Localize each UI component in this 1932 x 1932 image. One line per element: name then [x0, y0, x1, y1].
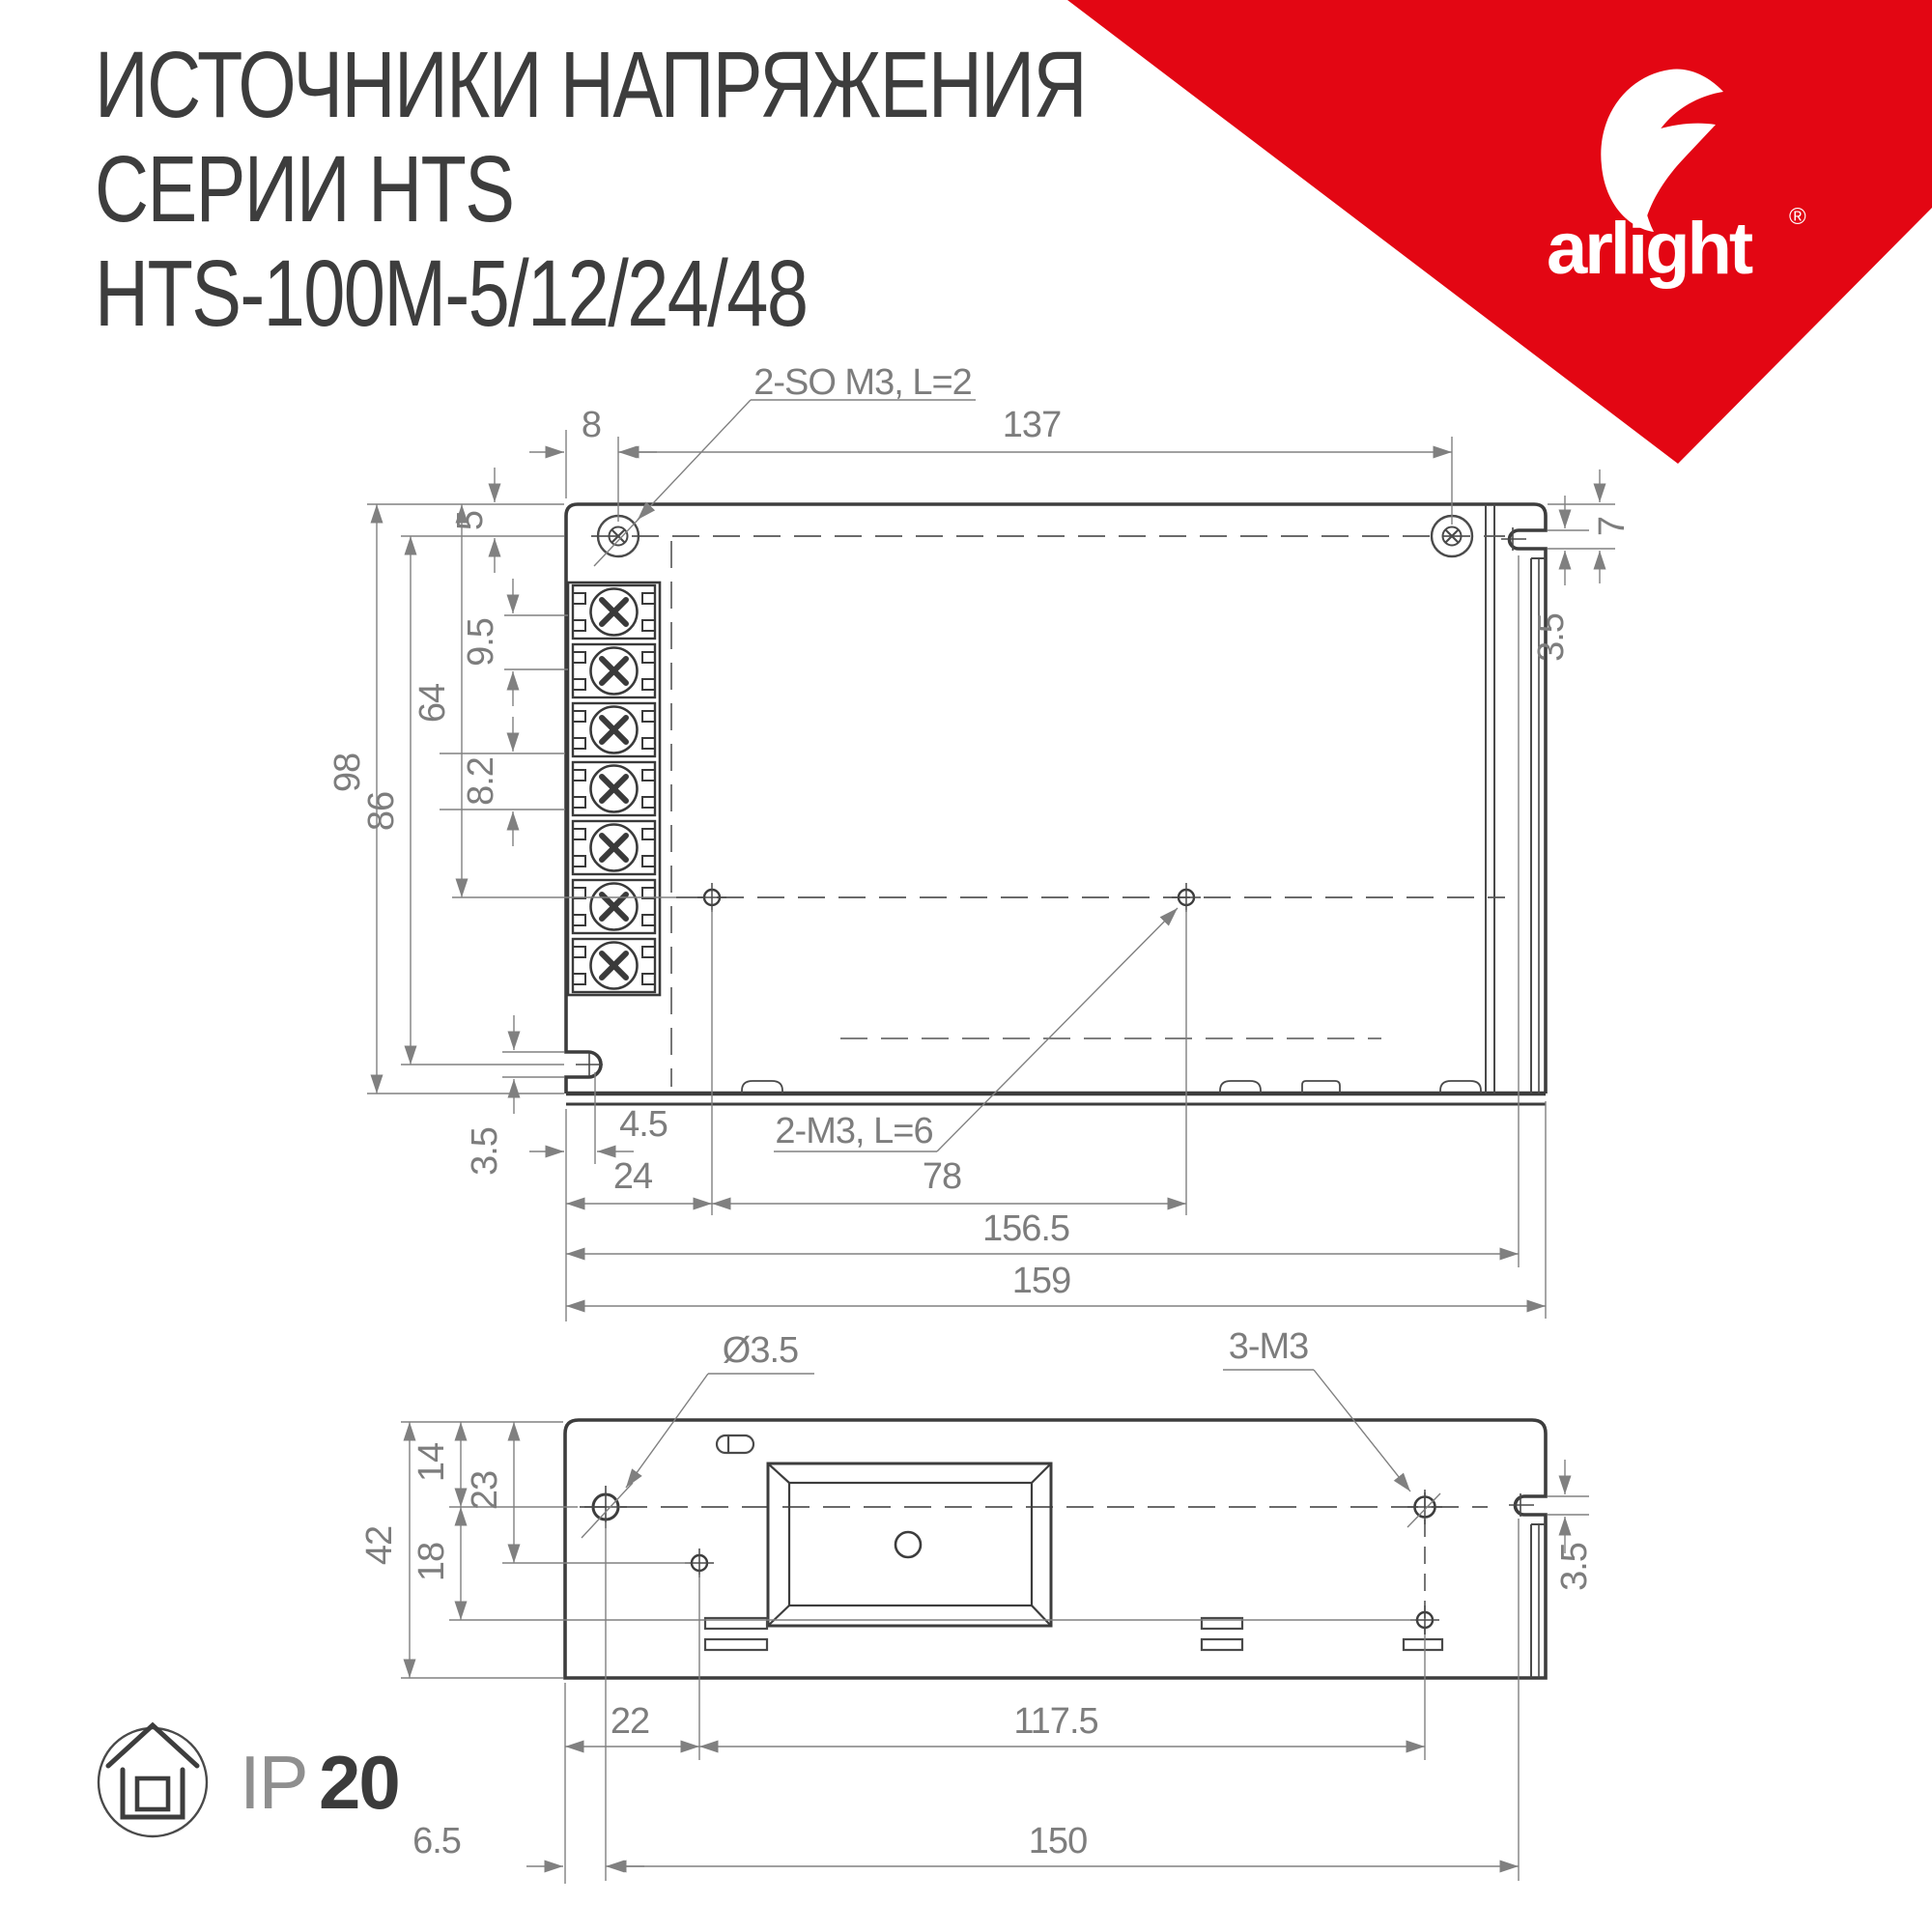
ip-badge-circle — [99, 1728, 207, 1836]
dim-3-5-right: 3.5 — [1531, 613, 1572, 662]
terminal-block — [568, 582, 660, 995]
dim-18: 18 — [412, 1543, 452, 1581]
top-louver — [717, 1435, 753, 1453]
dim-7: 7 — [1592, 517, 1633, 536]
dim-4-5: 4.5 — [619, 1104, 668, 1145]
chassis-hole-left — [697, 883, 726, 912]
logo-triangle — [1067, 0, 1932, 464]
vent-slots — [705, 1618, 1442, 1650]
dim-117-5: 117.5 — [1013, 1701, 1097, 1742]
dim-137: 137 — [1003, 405, 1061, 445]
terminal-screw-4 — [573, 762, 655, 815]
dim-5: 5 — [450, 511, 491, 530]
window-center-hole — [895, 1532, 921, 1557]
ip-rating-value: 20 — [319, 1740, 399, 1825]
dim-8-2: 8.2 — [461, 757, 501, 806]
top-view-dimensions — [367, 400, 1615, 1321]
dim-159: 159 — [1012, 1261, 1070, 1301]
brand-corner: arlight ® — [1067, 0, 1932, 464]
dim-8: 8 — [582, 405, 601, 445]
dim-42: 42 — [359, 1526, 400, 1565]
dim-156-5: 156.5 — [982, 1208, 1069, 1249]
terminal-screw-6 — [573, 880, 655, 933]
technical-drawing: arlight ® — [0, 0, 1932, 1932]
terminal-screw-5 — [573, 821, 655, 874]
callout-top-screws: 2-SO M3, L=2 — [753, 362, 972, 403]
datasheet-page: ИСТОЧНИКИ НАПРЯЖЕНИЯ СЕРИИ HTS HTS-100M-… — [0, 0, 1932, 1932]
ip-badge: IP 20 — [99, 1725, 399, 1836]
enclosure-outline-right — [578, 504, 1546, 1094]
bottom-view — [565, 1420, 1546, 1678]
m3-hole — [1407, 1490, 1442, 1524]
ip-rating-prefix: IP — [240, 1740, 307, 1825]
bottom-view-labels: Ø3.5 3-M3 42 14 23 18 22 117.5 6.5 150 3… — [359, 1326, 1595, 1861]
logo-wordmark: arlight — [1547, 208, 1753, 290]
dim-98: 98 — [327, 753, 368, 792]
dim-22: 22 — [611, 1701, 649, 1742]
dim-6-5: 6.5 — [412, 1821, 461, 1861]
callout-dia-3-5: Ø3.5 — [723, 1330, 798, 1371]
logo-registered-mark: ® — [1789, 204, 1806, 230]
terminal-screw-1 — [573, 585, 655, 639]
dim-3-5-bottom-right: 3.5 — [1554, 1543, 1595, 1591]
callout-3-m3: 3-M3 — [1229, 1326, 1309, 1367]
terminal-screw-2 — [573, 644, 655, 697]
chassis-hole-right — [1172, 883, 1201, 912]
dia-3-5-hole — [584, 1486, 627, 1528]
dim-14: 14 — [412, 1442, 452, 1482]
dim-64: 64 — [412, 683, 453, 723]
dim-150: 150 — [1029, 1821, 1087, 1861]
dim-23: 23 — [465, 1471, 505, 1510]
dim-3-5-left: 3.5 — [465, 1127, 505, 1176]
terminal-screw-3 — [573, 703, 655, 756]
dim-78: 78 — [923, 1156, 961, 1197]
terminal-screw-7 — [573, 939, 655, 992]
top-view — [566, 504, 1546, 1104]
dim-24: 24 — [613, 1156, 653, 1197]
callout-bottom-holes: 2-M3, L=6 — [775, 1111, 932, 1151]
dim-9-5: 9.5 — [461, 618, 501, 667]
dim-86: 86 — [361, 792, 402, 831]
cover-window — [768, 1463, 1051, 1626]
